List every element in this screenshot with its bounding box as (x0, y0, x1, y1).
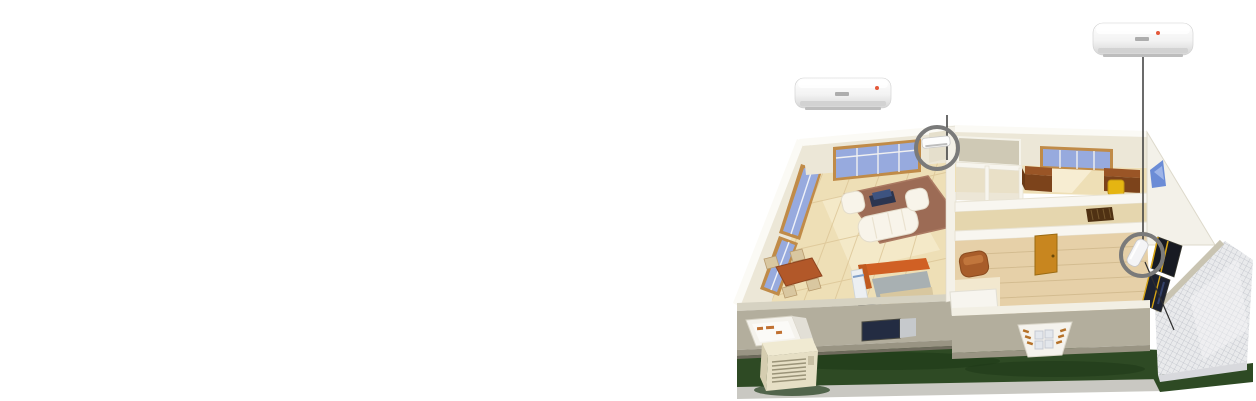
house-scene-svg (0, 0, 1256, 401)
office-window (1040, 146, 1113, 171)
office-chair-yellow (1108, 180, 1124, 195)
hallway-roof-tan (958, 137, 1020, 166)
doormat (1086, 207, 1114, 222)
closet-partitions (956, 162, 1023, 205)
ac-bottom-flap (1098, 48, 1188, 53)
office-desk-left (1022, 166, 1052, 192)
ac-vent-strip (1103, 54, 1183, 57)
bedroom-armchair (958, 250, 990, 278)
ac-bottom-flap (800, 101, 886, 106)
condenser-label (808, 356, 814, 365)
ac-top-gloss (1096, 25, 1190, 34)
right-wall-exterior (1147, 132, 1215, 245)
front-window-opening-dark (862, 319, 900, 341)
ac-vent-strip (805, 107, 881, 110)
status-indicator (1156, 31, 1160, 35)
brand-logo (1135, 37, 1149, 41)
enlarged-ac-unit-left (795, 78, 891, 110)
house-shadow-right (965, 361, 1145, 377)
enlarged-ac-unit-right (1093, 23, 1193, 57)
front-wall-right-building (952, 300, 1150, 359)
status-indicator (875, 86, 879, 90)
ac-top-gloss (798, 80, 888, 88)
brand-logo (835, 92, 849, 96)
bedroom-door (1035, 234, 1057, 275)
product-illustration (0, 0, 1256, 401)
front-window-pane-light (900, 318, 916, 338)
